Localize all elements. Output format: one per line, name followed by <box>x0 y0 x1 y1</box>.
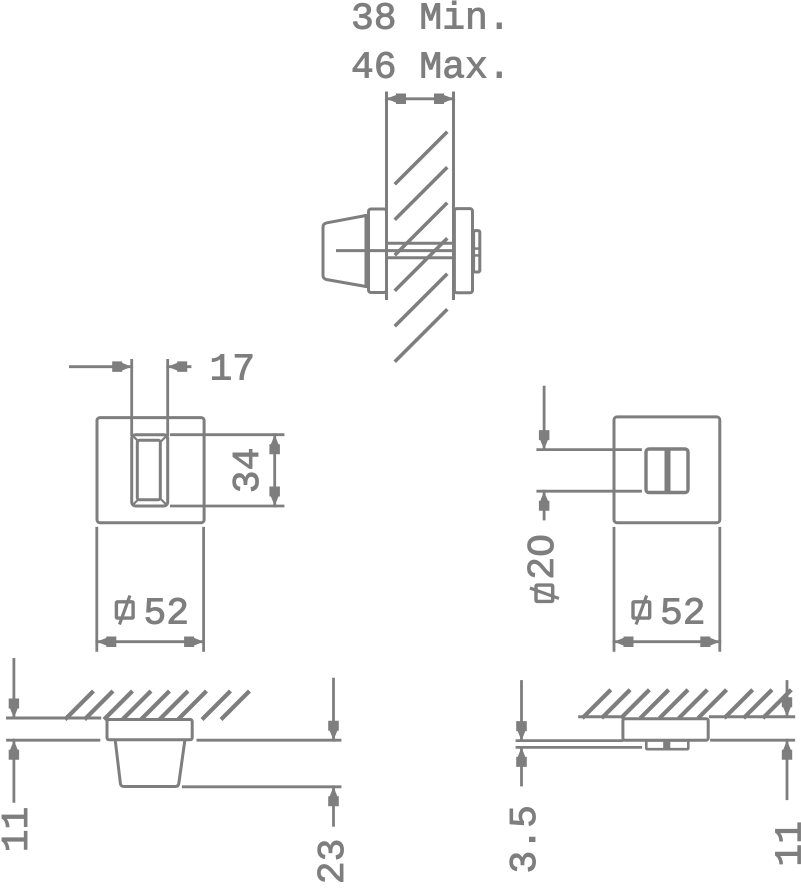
svg-text:23: 23 <box>312 839 355 885</box>
svg-text:34: 34 <box>227 448 270 494</box>
svg-text:52: 52 <box>144 592 190 635</box>
svg-text:46 Max.: 46 Max. <box>351 46 511 89</box>
svg-text:11: 11 <box>769 821 801 867</box>
svg-text:11: 11 <box>0 807 39 853</box>
svg-text:3.5: 3.5 <box>504 805 547 873</box>
svg-text:2O: 2O <box>522 534 565 580</box>
svg-text:17: 17 <box>210 349 256 392</box>
svg-text:52: 52 <box>660 592 706 635</box>
svg-text:38 Min.: 38 Min. <box>351 0 511 41</box>
